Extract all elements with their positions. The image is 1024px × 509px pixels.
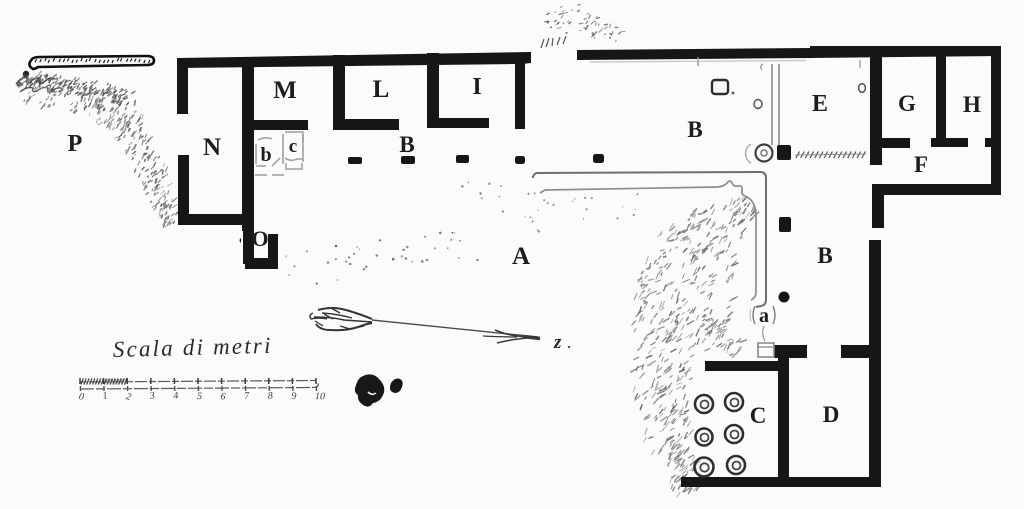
svg-text:F: F [914,152,928,177]
svg-text:5: 5 [197,391,203,402]
svg-text:C: C [750,403,767,428]
svg-text:c: c [289,136,297,157]
svg-text:Scala di metri: Scala di metri [112,333,272,362]
svg-text:b: b [260,144,271,166]
svg-text:z: z [553,332,562,353]
svg-text:P: P [68,131,83,157]
svg-text:G: G [898,91,916,116]
svg-text:B: B [399,132,414,157]
svg-text:L: L [373,76,390,103]
svg-text:B: B [687,117,702,142]
svg-text:O: O [251,226,268,251]
svg-text:9: 9 [291,391,296,402]
svg-text:I: I [472,74,481,100]
svg-text:H: H [963,92,981,117]
svg-text:A: A [512,243,530,270]
svg-text:E: E [812,91,828,117]
svg-text:B: B [817,243,832,268]
svg-text:D: D [823,402,840,427]
svg-text:10: 10 [315,391,325,402]
svg-text:N: N [203,134,221,161]
svg-text:M: M [273,77,297,104]
svg-text:a: a [759,305,769,327]
